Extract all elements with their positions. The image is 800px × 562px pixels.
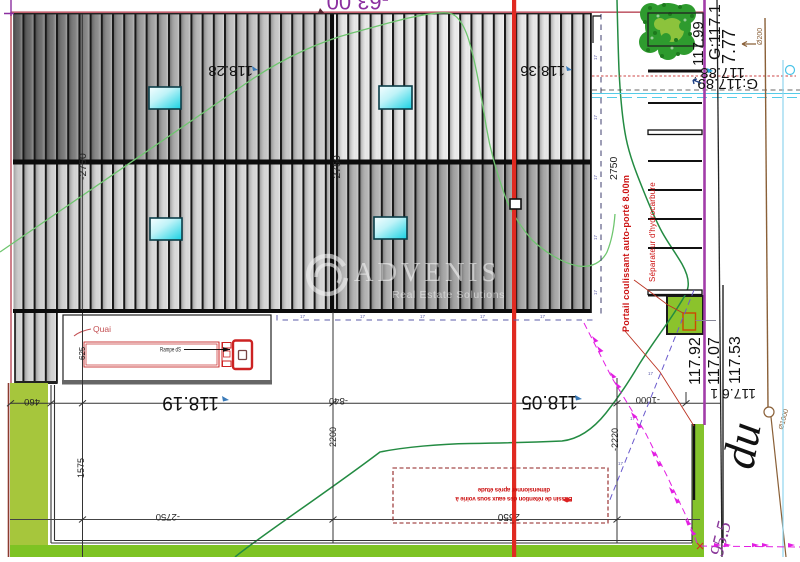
svg-text:117.92: 117.92 xyxy=(687,337,704,385)
svg-text:2200: 2200 xyxy=(328,427,338,447)
svg-text:17: 17 xyxy=(540,314,546,319)
svg-text:117.6 1: 117.6 1 xyxy=(710,386,756,402)
svg-text:1575: 1575 xyxy=(76,458,86,478)
svg-text:625: 625 xyxy=(78,346,87,360)
svg-text:17: 17 xyxy=(593,174,598,180)
svg-text:-2220: -2220 xyxy=(610,428,620,451)
svg-text:17: 17 xyxy=(593,114,598,120)
svg-text:7.77: 7.77 xyxy=(719,29,739,64)
svg-text:460: 460 xyxy=(24,396,40,407)
svg-text:117.07: 117.07 xyxy=(706,337,723,385)
svg-text:-63.00: -63.00 xyxy=(327,0,389,14)
svg-text:118.36: 118.36 xyxy=(520,62,565,79)
svg-text:2550: 2550 xyxy=(497,511,520,522)
svg-text:-1000: -1000 xyxy=(636,394,660,405)
svg-text:-2750: -2750 xyxy=(156,511,180,522)
svg-text:17: 17 xyxy=(648,371,654,376)
svg-text:17: 17 xyxy=(593,54,598,60)
svg-text:Séparateur d'hydrocarbure: Séparateur d'hydrocarbure xyxy=(648,182,657,282)
svg-text:17: 17 xyxy=(420,314,426,319)
svg-text:Rampe dS: Rampe dS xyxy=(160,348,181,354)
svg-text:Portail coulissant auto-porté: Portail coulissant auto-porté 8.00m xyxy=(621,175,631,332)
svg-text:118.05: 118.05 xyxy=(521,391,578,412)
svg-text:17: 17 xyxy=(593,234,598,240)
svg-text:2750: 2750 xyxy=(608,156,620,180)
svg-text:17: 17 xyxy=(593,289,598,295)
svg-text:118.28: 118.28 xyxy=(208,62,253,79)
svg-text:dimensionner après étude: dimensionner après étude xyxy=(477,486,550,493)
svg-text:Quai: Quai xyxy=(93,324,111,334)
svg-text:117.53: 117.53 xyxy=(727,336,744,384)
svg-text:17: 17 xyxy=(360,314,366,319)
svg-text:118.19: 118.19 xyxy=(162,392,219,413)
svg-text:Bassin de rétention des eaux s: Bassin de rétention des eaux sous voirie… xyxy=(455,495,573,502)
svg-text:17: 17 xyxy=(618,461,624,466)
svg-text:-840: -840 xyxy=(329,395,348,406)
svg-text:Real Estate Solutions: Real Estate Solutions xyxy=(392,289,505,301)
svg-text:G:117.89,: G:117.89, xyxy=(693,75,758,92)
svg-text:117.99: 117.99 xyxy=(690,21,707,66)
svg-text:17: 17 xyxy=(300,314,306,319)
svg-text:du: du xyxy=(712,418,770,472)
svg-text:Ø200: Ø200 xyxy=(757,28,764,45)
svg-text:17: 17 xyxy=(480,314,486,319)
svg-text:-2750: -2750 xyxy=(331,155,343,182)
svg-text:ADVENIS: ADVENIS xyxy=(354,257,501,287)
svg-text:-2750: -2750 xyxy=(77,153,89,180)
